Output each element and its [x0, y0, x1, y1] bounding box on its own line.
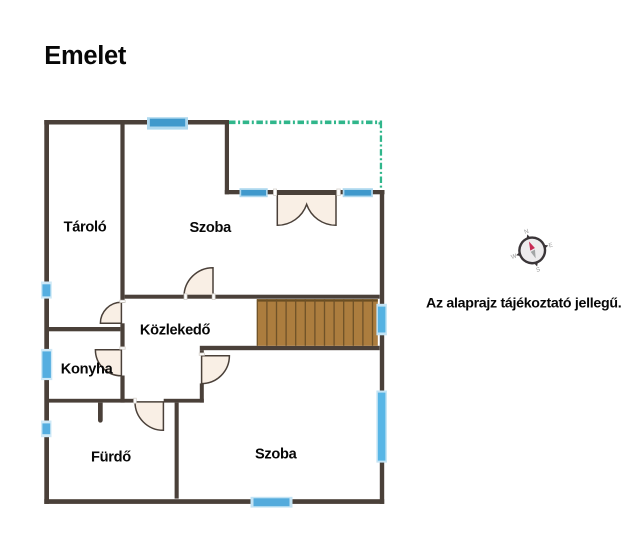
svg-text:Fürdő: Fürdő [91, 449, 131, 465]
svg-text:Közlekedő: Közlekedő [140, 322, 211, 338]
svg-text:Emelet: Emelet [44, 42, 127, 70]
svg-text:Az alaprajz tájékoztató jelleg: Az alaprajz tájékoztató jellegű. [426, 296, 621, 312]
svg-text:Konyha: Konyha [61, 361, 114, 377]
svg-text:Szoba: Szoba [255, 447, 298, 463]
svg-text:Tároló: Tároló [64, 220, 107, 236]
svg-text:Szoba: Szoba [189, 220, 232, 236]
